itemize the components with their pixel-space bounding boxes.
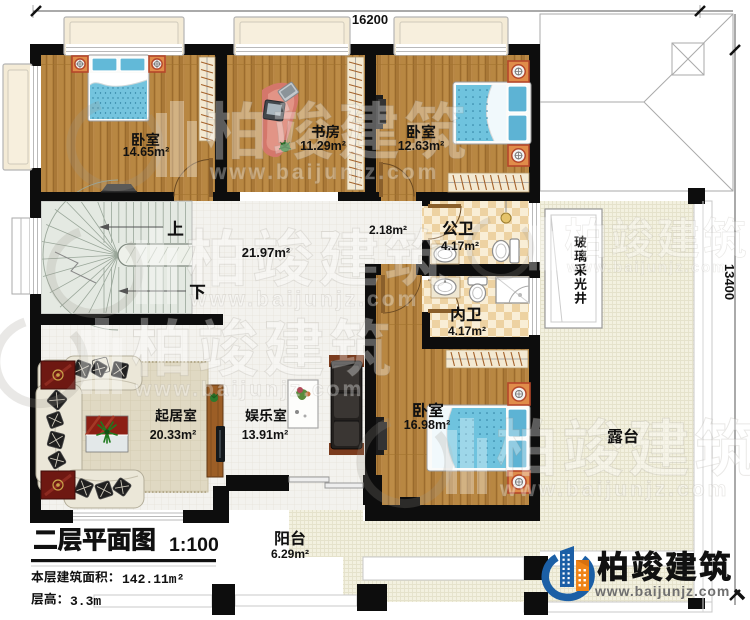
svg-text:www.baijunjz.com: www.baijunjz.com [594,583,730,599]
svg-text:3.3m: 3.3m [70,594,101,609]
svg-text:4.17m²: 4.17m² [448,324,486,338]
svg-text:11.29m²: 11.29m² [300,139,346,153]
svg-text:16200: 16200 [352,12,388,27]
svg-text:21.97m²: 21.97m² [242,245,291,260]
svg-text:142.11m²: 142.11m² [122,572,184,587]
svg-text:20.33m²: 20.33m² [150,428,197,442]
svg-text:6.29m²: 6.29m² [271,547,309,561]
svg-text:4.17m²: 4.17m² [441,239,479,253]
svg-text:13.91m²: 13.91m² [242,428,289,442]
svg-text:2.18m²: 2.18m² [369,223,407,237]
svg-text:1:100: 1:100 [169,534,219,556]
svg-text:16.98m²: 16.98m² [404,418,451,432]
svg-text:12.63m²: 12.63m² [398,139,445,153]
svg-text:14.65m²: 14.65m² [123,145,170,159]
